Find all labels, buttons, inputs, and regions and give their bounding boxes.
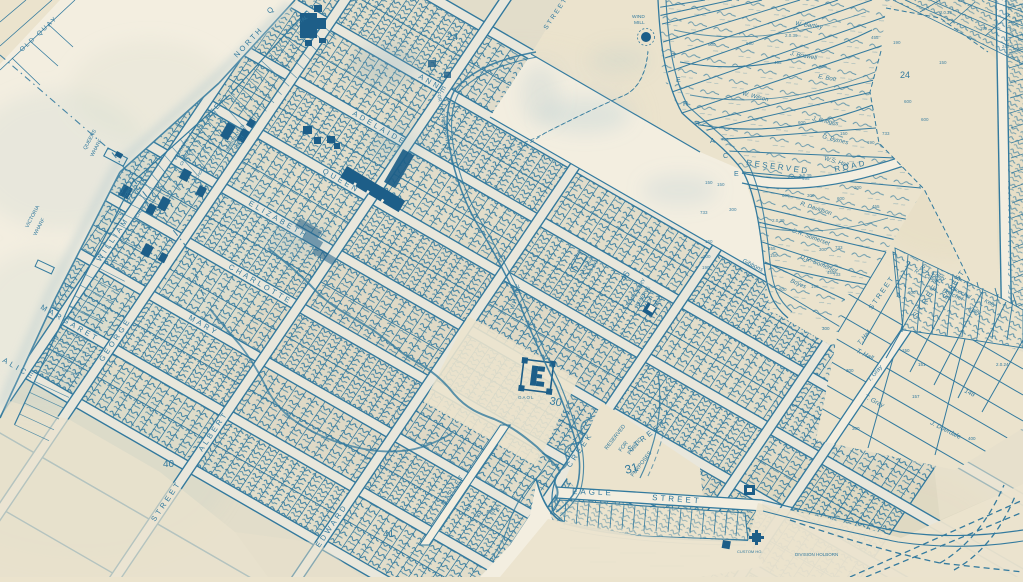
svg-text:300: 300	[729, 207, 737, 212]
svg-text:733: 733	[721, 137, 729, 142]
svg-text:41: 41	[383, 529, 395, 540]
svg-text:600: 600	[921, 117, 929, 122]
svg-text:300: 300	[703, 254, 711, 259]
svg-text:600: 600	[904, 99, 912, 104]
svg-text:MILL: MILL	[634, 20, 645, 26]
svg-text:455: 455	[802, 176, 810, 181]
svg-text:C: C	[723, 153, 728, 160]
svg-text:GAOL: GAOL	[518, 395, 535, 400]
svg-text:157: 157	[912, 394, 920, 399]
svg-text:WIND: WIND	[632, 14, 645, 20]
svg-text:733: 733	[835, 245, 843, 250]
svg-text:190: 190	[867, 140, 875, 145]
svg-text:600: 600	[819, 64, 827, 69]
svg-text:150: 150	[705, 180, 713, 185]
svg-text:300: 300	[854, 185, 862, 190]
svg-text:300: 300	[822, 326, 830, 331]
svg-text:40: 40	[163, 459, 175, 470]
svg-text:190: 190	[980, 26, 988, 31]
svg-text:2.0.39: 2.0.39	[772, 218, 785, 223]
svg-text:150: 150	[705, 239, 713, 244]
svg-text:600: 600	[708, 42, 716, 47]
svg-text:455: 455	[774, 60, 782, 65]
svg-text:455: 455	[872, 204, 880, 209]
svg-text:E: E	[676, 77, 681, 84]
svg-text:E: E	[734, 171, 739, 178]
svg-text:300: 300	[787, 175, 795, 180]
svg-text:R: R	[695, 121, 700, 128]
svg-text:DIVISION HOLBORN: DIVISION HOLBORN	[795, 552, 838, 557]
svg-text:733: 733	[833, 272, 841, 277]
svg-text:733: 733	[700, 210, 708, 215]
svg-text:600: 600	[782, 193, 790, 198]
svg-text:2.0.39: 2.0.39	[785, 33, 798, 38]
svg-text:300: 300	[846, 368, 854, 373]
svg-text:455: 455	[768, 246, 776, 251]
svg-text:455: 455	[871, 35, 879, 40]
svg-text:733: 733	[882, 131, 890, 136]
svg-text:300: 300	[819, 247, 827, 252]
svg-text:2.0.39: 2.0.39	[940, 10, 952, 15]
svg-text:A: A	[710, 138, 715, 145]
svg-text:190: 190	[702, 265, 710, 270]
svg-text:300: 300	[852, 426, 860, 431]
svg-text:600: 600	[837, 196, 845, 201]
svg-text:T: T	[672, 53, 677, 60]
svg-text:24: 24	[447, 32, 459, 43]
svg-text:CUSTOM HO.: CUSTOM HO.	[737, 549, 762, 554]
svg-text:150: 150	[717, 182, 725, 187]
svg-text:190: 190	[893, 40, 901, 45]
svg-text:600: 600	[779, 287, 787, 292]
svg-text:150: 150	[902, 348, 910, 353]
svg-text:240: 240	[1002, 44, 1010, 49]
svg-text:600: 600	[746, 41, 754, 46]
svg-text:150: 150	[770, 253, 778, 258]
svg-text:600: 600	[798, 120, 806, 125]
svg-text:300: 300	[807, 193, 815, 198]
svg-text:400: 400	[968, 436, 976, 441]
svg-text:150: 150	[939, 60, 947, 65]
svg-text:190: 190	[811, 284, 819, 289]
svg-text:2.0.24: 2.0.24	[996, 362, 1009, 367]
svg-text:24: 24	[900, 70, 910, 80]
svg-text:150: 150	[840, 131, 848, 136]
svg-text:R: R	[683, 101, 688, 108]
svg-text:600: 600	[908, 290, 916, 295]
svg-text:151: 151	[918, 362, 926, 367]
